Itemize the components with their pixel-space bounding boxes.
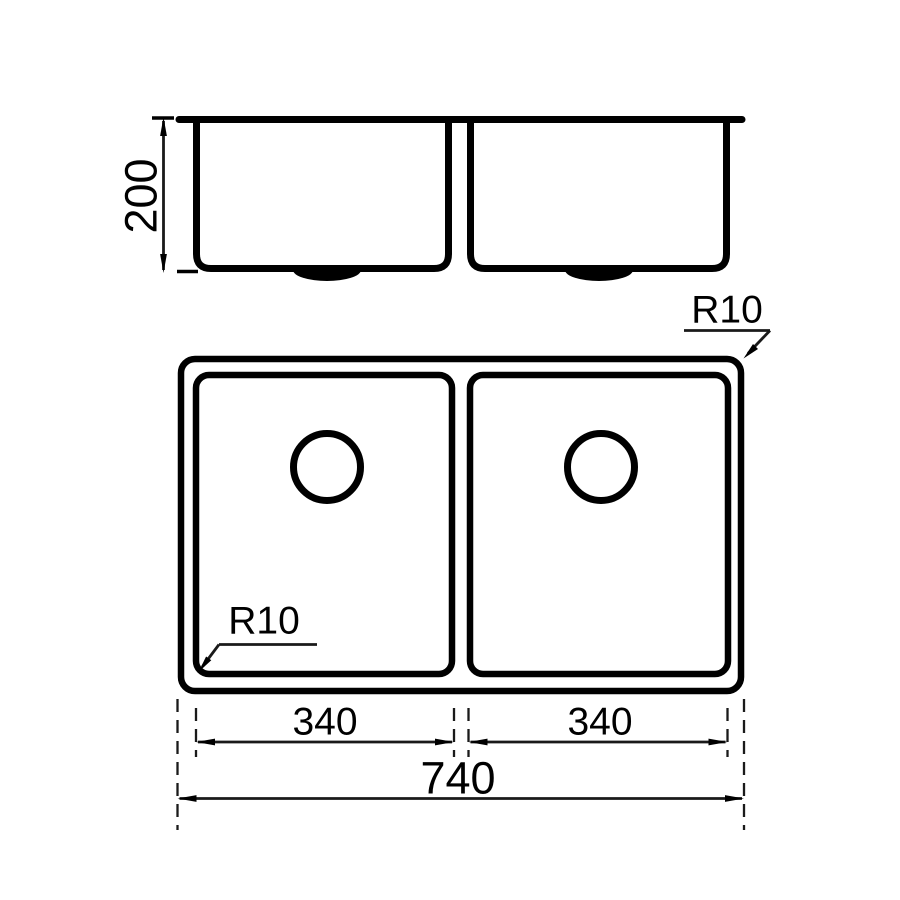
right-bowl-outline — [470, 375, 728, 674]
arrow-right-icon — [435, 739, 454, 746]
arrow-right-icon — [709, 739, 728, 746]
plan-view: R10 R10 340 — [178, 289, 771, 831]
arrow-left-icon — [196, 739, 215, 746]
sink-technical-drawing: 200 R10 R10 — [0, 0, 900, 900]
arrow-right-icon — [725, 795, 744, 802]
left-bowl-width-dimension: 340 — [196, 701, 454, 746]
left-bowl-profile — [197, 123, 449, 269]
outer-radius-callout: R10 — [684, 289, 770, 359]
right-drain-hole — [568, 434, 635, 501]
left-drain-hole — [294, 434, 361, 501]
outer-radius-label: R10 — [691, 289, 763, 332]
overall-width-dimension: 740 — [178, 753, 745, 804]
right-bowl-width-label: 340 — [567, 701, 632, 744]
depth-dimension-label: 200 — [116, 158, 167, 233]
side-view: 200 — [116, 117, 743, 281]
left-bowl-width-label: 340 — [292, 701, 357, 744]
arrow-down-icon — [160, 254, 167, 273]
arrow-left-icon — [178, 795, 197, 802]
right-bowl-profile — [471, 123, 727, 269]
arrow-up-icon — [160, 117, 167, 136]
drawing-svg: 200 R10 R10 — [0, 0, 900, 900]
bowl-radius-callout: R10 — [199, 600, 318, 673]
arrow-left-icon — [469, 739, 488, 746]
right-bowl-width-dimension: 340 — [469, 701, 728, 746]
depth-dimension: 200 — [116, 117, 199, 273]
left-drain-bump — [293, 270, 361, 281]
bowl-radius-label: R10 — [228, 600, 300, 643]
overall-width-label: 740 — [420, 753, 495, 804]
right-drain-bump — [565, 270, 633, 281]
